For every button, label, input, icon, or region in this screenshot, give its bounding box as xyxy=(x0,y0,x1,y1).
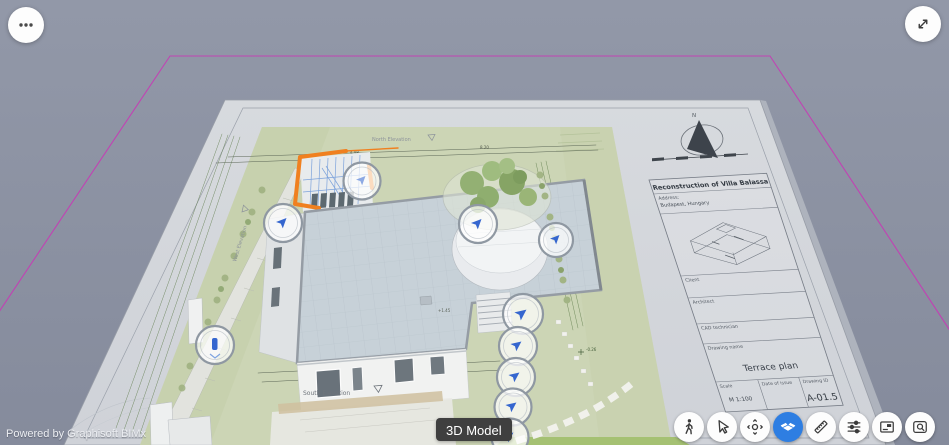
look-around-icon xyxy=(745,417,765,437)
dim-north-2: 8.20 xyxy=(480,145,489,150)
powered-by-label: Powered by Graphisoft BIMx xyxy=(6,428,146,440)
south-elevation-label: South Elevation xyxy=(303,390,350,397)
ellipsis-icon xyxy=(16,15,36,35)
tool-tooltip: 3D Model xyxy=(436,418,512,441)
viewpoint-marker[interactable] xyxy=(264,204,302,242)
measure-button[interactable] xyxy=(806,412,836,442)
select-cursor-icon xyxy=(712,417,732,437)
client-label: Client xyxy=(685,277,701,284)
find-on-layout-button[interactable] xyxy=(905,412,935,442)
viewport-3d[interactable]: 4.98 8.20 4.44 1.52 62 4.71 9.60 xyxy=(0,0,949,445)
toolbar xyxy=(674,412,935,442)
find-on-layout-icon xyxy=(910,417,930,437)
garden-level: -0.26 xyxy=(586,347,597,352)
settings-sliders-icon xyxy=(844,417,864,437)
drawing-id-value: A-01.5 xyxy=(805,392,839,404)
layouts-sheet-icon xyxy=(877,417,897,437)
3d-model-button[interactable] xyxy=(773,412,803,442)
look-around-button[interactable] xyxy=(740,412,770,442)
bimx-viewer: 4.98 8.20 4.44 1.52 62 4.71 9.60 xyxy=(0,0,949,445)
viewpoint-marker[interactable] xyxy=(539,223,573,257)
fullscreen-expand-icon xyxy=(913,14,933,34)
walk-mode-button[interactable] xyxy=(674,412,704,442)
fullscreen-button[interactable] xyxy=(905,6,941,42)
scale-label: Scale xyxy=(719,383,733,389)
select-mode-button[interactable] xyxy=(707,412,737,442)
walk-icon xyxy=(679,417,699,437)
architect-label: Architect xyxy=(692,299,716,306)
menu-button[interactable] xyxy=(8,7,44,43)
viewpoint-marker[interactable] xyxy=(344,163,381,200)
measure-ruler-icon xyxy=(811,417,831,437)
viewpoint-marker[interactable] xyxy=(459,205,497,243)
settings-button[interactable] xyxy=(839,412,869,442)
3d-model-icon xyxy=(778,417,798,437)
layouts-button[interactable] xyxy=(872,412,902,442)
compass-n-label: N xyxy=(692,113,696,119)
address-label: Address: xyxy=(657,195,680,202)
viewpoint-marker[interactable] xyxy=(196,326,234,364)
roof-level: +1.45 xyxy=(438,308,451,313)
north-elevation-label: North Elevation xyxy=(372,137,411,143)
